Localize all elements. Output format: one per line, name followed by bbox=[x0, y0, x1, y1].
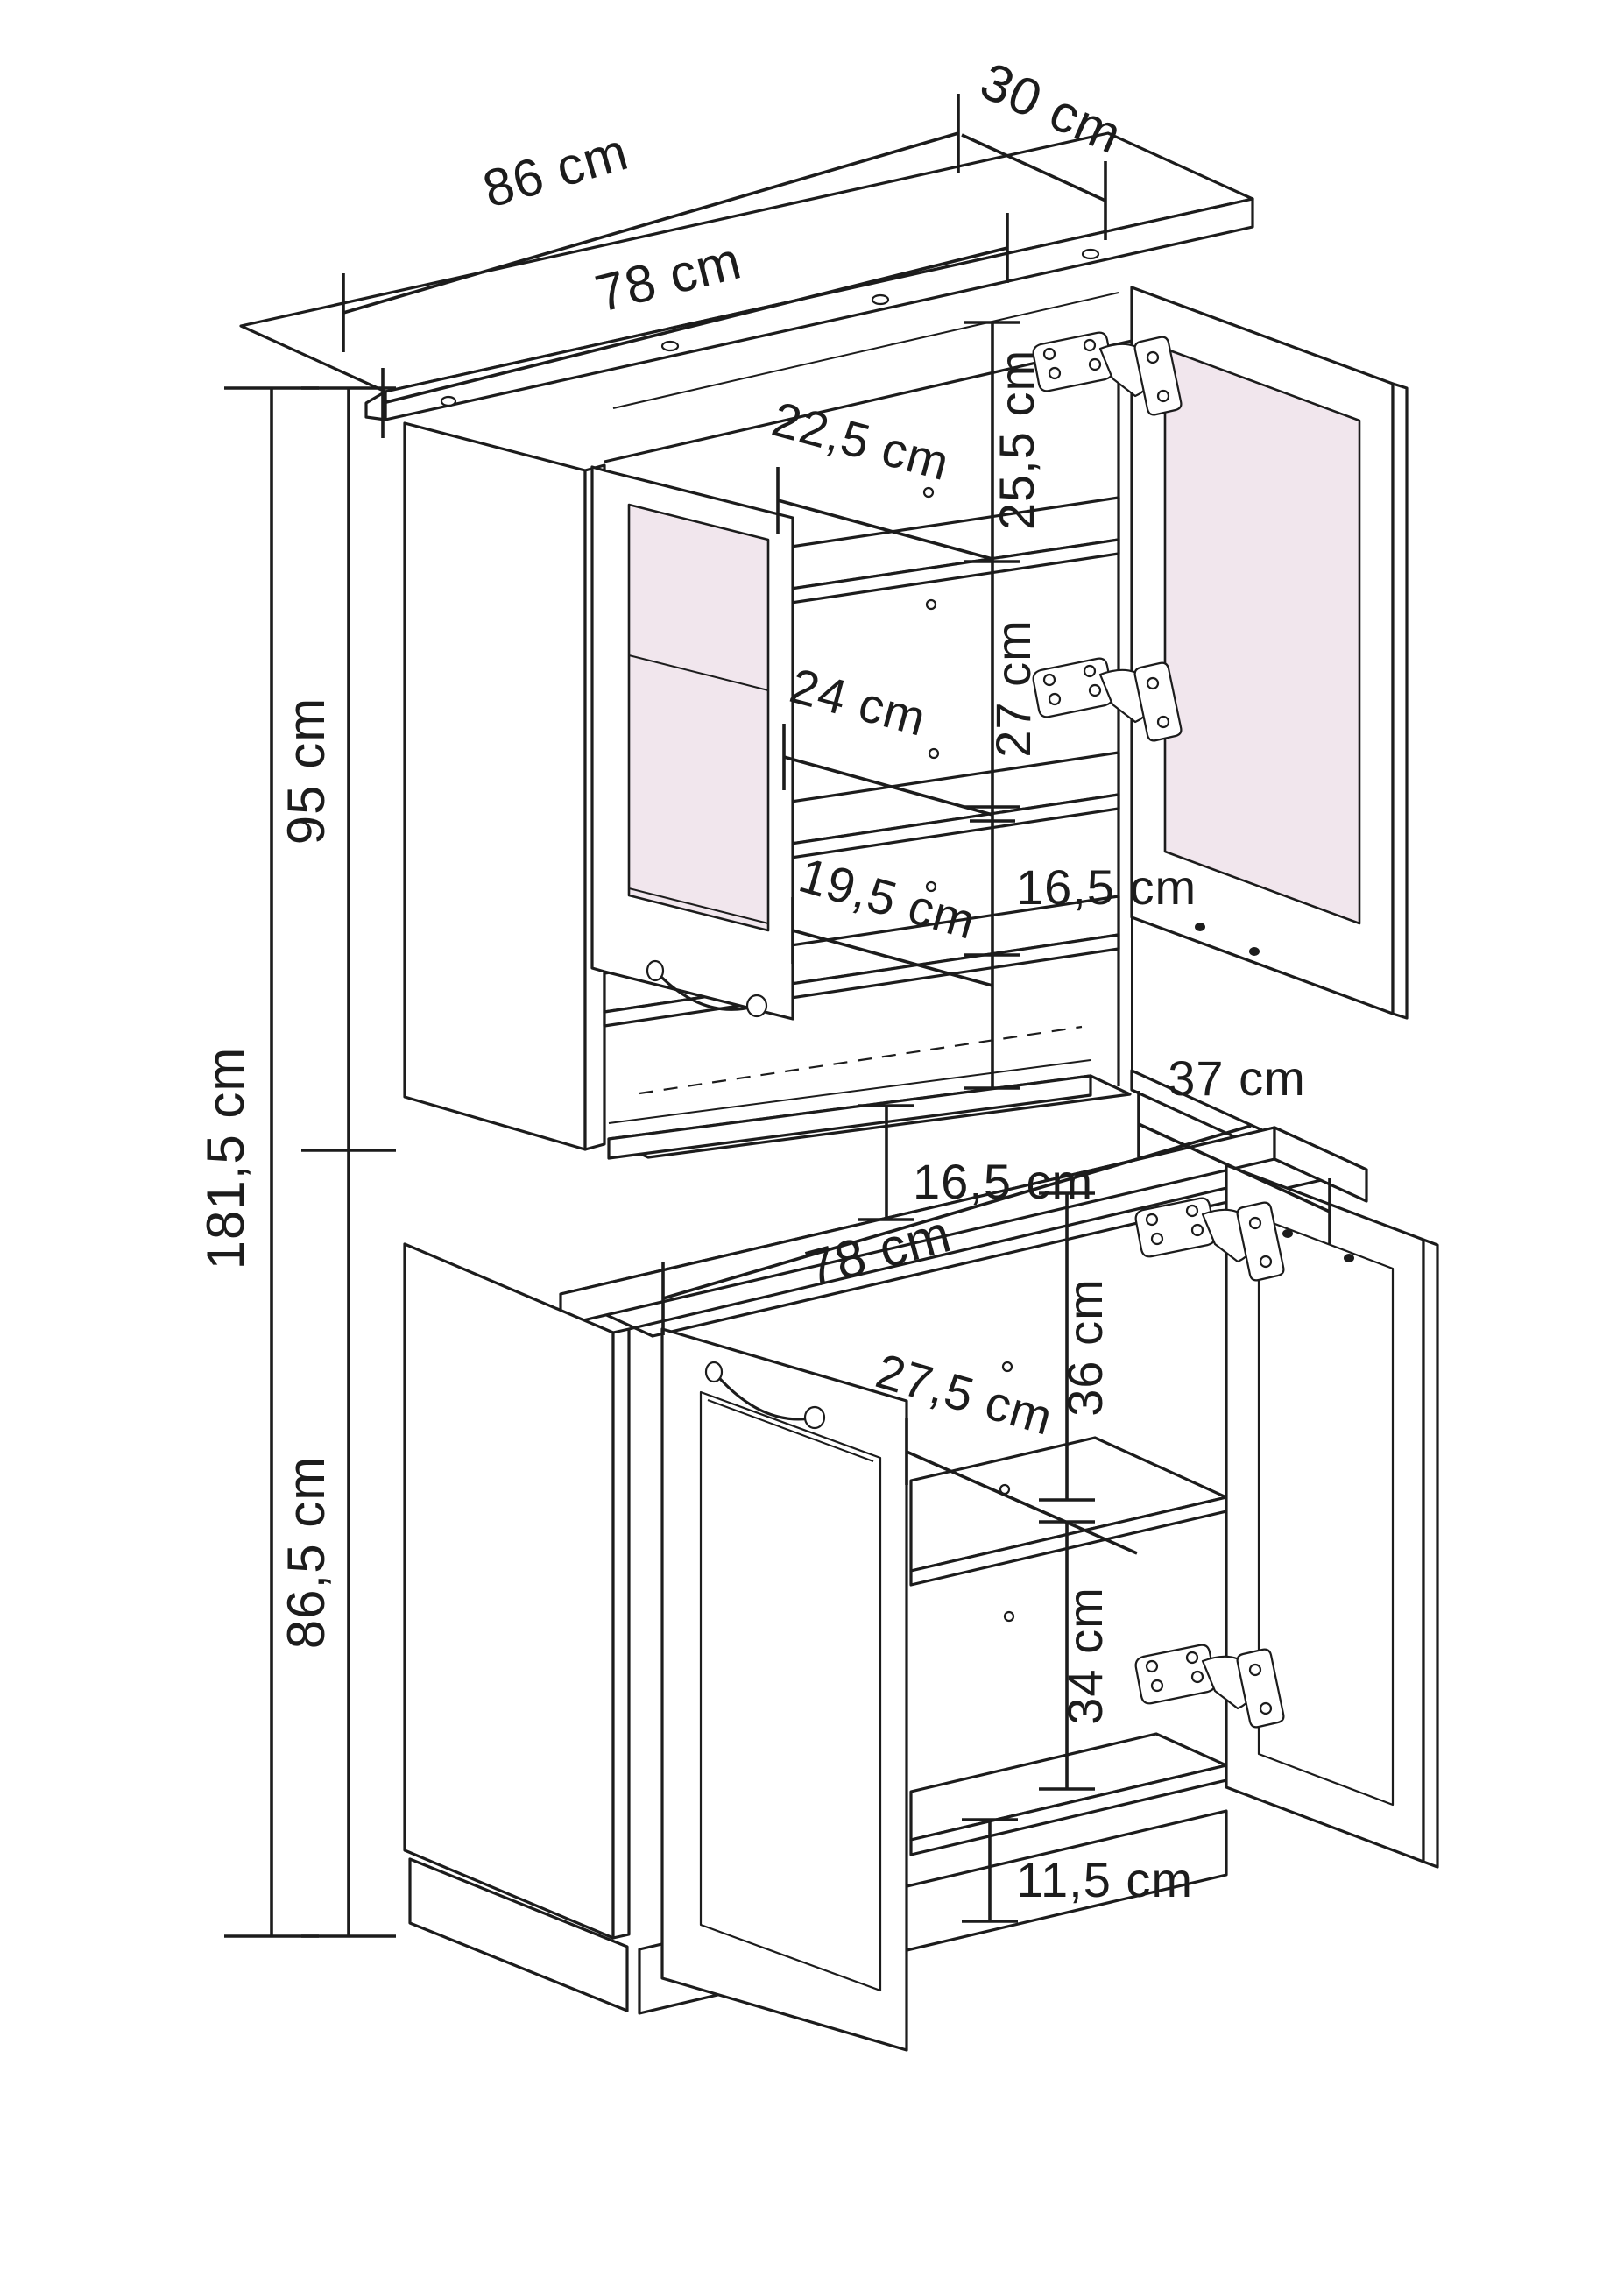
dim-label-lower-height: 86,5 cm bbox=[277, 1456, 335, 1649]
door-hinge bbox=[1034, 659, 1182, 741]
dim-lower-section-height: 86,5 cm bbox=[277, 1150, 396, 1936]
handle-mount bbox=[805, 1407, 824, 1428]
dim-label-total-height: 181,5 cm bbox=[196, 1047, 255, 1270]
door-hinge bbox=[1136, 1199, 1284, 1281]
cabinet-dimension-drawing: 181,5 cm 95 cm 86,5 cm 86 cm 30 cm 78 cm bbox=[0, 0, 1624, 2284]
dim-label-space-34: 34 cm bbox=[1057, 1587, 1112, 1725]
dim-label-space-36: 36 cm bbox=[1057, 1278, 1112, 1417]
dim-label-shelf1-depth: 22,5 cm bbox=[766, 391, 955, 491]
door-hinge bbox=[1034, 333, 1182, 415]
technical-drawing-page: 181,5 cm 95 cm 86,5 cm 86 cm 30 cm 78 cm bbox=[0, 0, 1624, 2284]
door-hinge bbox=[1136, 1645, 1284, 1728]
lower-left-door bbox=[662, 1329, 907, 2050]
cornice-screw-hole bbox=[1083, 250, 1098, 258]
lower-left-side-panel bbox=[405, 1244, 613, 1938]
cornice-screw-hole bbox=[441, 397, 455, 406]
hidden-edge-dashed bbox=[639, 1027, 1082, 1093]
dim-label-upper-depth: 37 cm bbox=[1168, 1050, 1306, 1106]
dim-label-space-27: 27 cm bbox=[985, 619, 1041, 758]
dim-total-height: 181,5 cm bbox=[196, 388, 319, 1936]
pilot-hole bbox=[929, 749, 938, 758]
dim-label-space-16-5: 16,5 cm bbox=[1016, 859, 1197, 915]
upper-left-glass-door bbox=[592, 467, 793, 1019]
handle-mount bbox=[647, 961, 663, 980]
door-glass bbox=[1165, 349, 1359, 923]
dim-label-space-25-5: 25,5 cm bbox=[989, 350, 1044, 530]
door-screw-hole bbox=[1282, 1229, 1293, 1238]
cornice-screw-hole bbox=[872, 295, 888, 304]
handle-mount bbox=[747, 995, 766, 1016]
door-glass bbox=[629, 505, 768, 930]
pilot-hole bbox=[1005, 1612, 1013, 1621]
lower-left-side-front-edge bbox=[613, 1329, 629, 1938]
upper-left-side-panel bbox=[405, 423, 585, 1149]
dim-label-plinth-height: 11,5 cm bbox=[1016, 1852, 1193, 1907]
shelf-top-face bbox=[911, 1438, 1226, 1571]
door-edge-thickness bbox=[1393, 384, 1407, 1018]
door-screw-hole bbox=[1344, 1254, 1354, 1262]
handle-mount bbox=[706, 1362, 722, 1382]
cornice-screw-hole bbox=[662, 342, 678, 350]
door-screw-hole bbox=[1249, 947, 1260, 956]
dim-label-shelf2-depth: 24 cm bbox=[785, 657, 932, 746]
door-inner-frame bbox=[701, 1392, 880, 1991]
pilot-hole bbox=[924, 488, 933, 497]
lower-shelf bbox=[911, 1438, 1226, 1585]
dim-label-top-width: 86 cm bbox=[477, 122, 634, 219]
door-screw-hole bbox=[1195, 923, 1205, 931]
pilot-hole bbox=[927, 600, 936, 609]
dim-label-upper-height: 95 cm bbox=[277, 697, 335, 845]
pilot-hole bbox=[1003, 1362, 1012, 1371]
door-edge-thickness bbox=[1423, 1240, 1437, 1867]
dim-upper-section-height: 95 cm bbox=[277, 388, 396, 1150]
